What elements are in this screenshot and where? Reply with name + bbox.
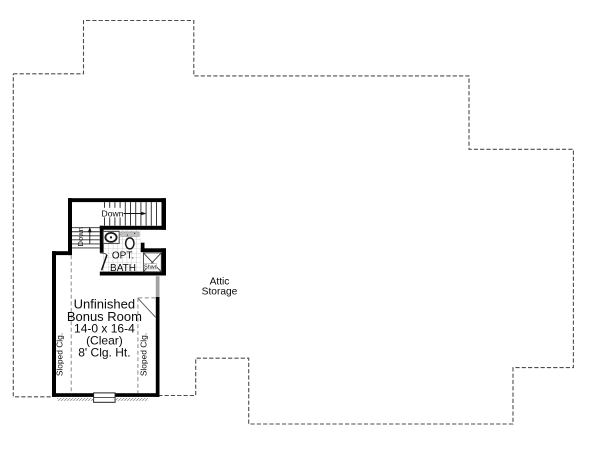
svg-text:8' Clg. Ht.: 8' Clg. Ht.	[78, 346, 130, 360]
svg-text:BATH: BATH	[110, 263, 136, 274]
svg-text:Shwr: Shwr	[144, 264, 156, 270]
svg-text:Down: Down	[76, 227, 85, 246]
svg-text:Sloped Clg.: Sloped Clg.	[138, 333, 148, 376]
svg-text:Down: Down	[102, 208, 124, 218]
svg-text:OPT.: OPT.	[112, 251, 134, 262]
svg-text:Sloped Clg.: Sloped Clg.	[54, 333, 64, 376]
svg-text:Storage: Storage	[202, 287, 238, 298]
